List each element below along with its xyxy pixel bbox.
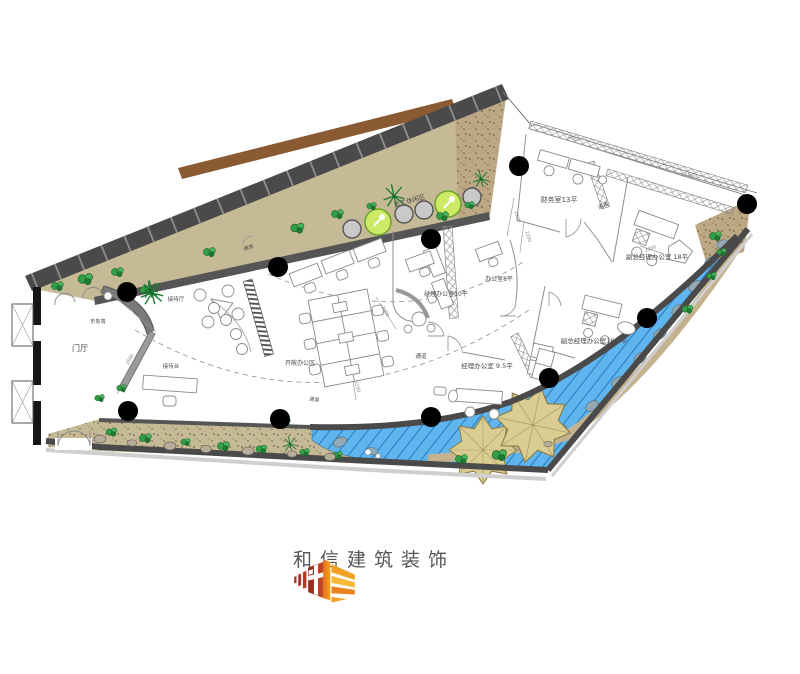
room-label: 办公室8平: [485, 275, 513, 283]
structural-column: [509, 156, 529, 176]
logo-icon: [293, 545, 363, 609]
room-label: 接待台: [163, 362, 180, 370]
structural-column: [539, 368, 559, 388]
room-label: 开敞办公区: [285, 359, 315, 367]
room-label: 经理办公室 9.5平: [461, 361, 513, 370]
structural-column: [270, 409, 290, 429]
room-label: 财务室13平: [541, 195, 578, 204]
company-logo: 和信建筑装饰: [293, 545, 455, 572]
room-label: 接待厅: [168, 295, 185, 303]
floor-plan-drawing: 门厅形象墙接待厅接待台开敞办公区员工休闲区通道通道通道通道经理办公室10平办公室…: [0, 0, 800, 674]
room-label: 通道: [415, 352, 427, 360]
room-label: 副总经理办公室16.5平: [561, 336, 628, 345]
structural-column: [637, 308, 657, 328]
room-label: 通道: [309, 396, 320, 404]
structural-column: [268, 257, 288, 277]
room-label: 门厅: [72, 343, 88, 353]
room-label: 副总经理办公室 18平: [626, 252, 689, 261]
dimension-label: 2200: [523, 230, 532, 243]
structural-column: [118, 401, 138, 421]
floor-plan-page: 门厅形象墙接待厅接待台开敞办公区员工休闲区通道通道通道通道经理办公室10平办公室…: [0, 0, 800, 674]
room-label: 形象墙: [90, 318, 105, 325]
room-label: 经理办公室10平: [424, 290, 468, 298]
structural-column: [421, 407, 441, 427]
dimension-label: 2900: [512, 210, 521, 223]
structural-column: [737, 194, 757, 214]
structural-column: [117, 282, 137, 302]
structural-column: [421, 229, 441, 249]
